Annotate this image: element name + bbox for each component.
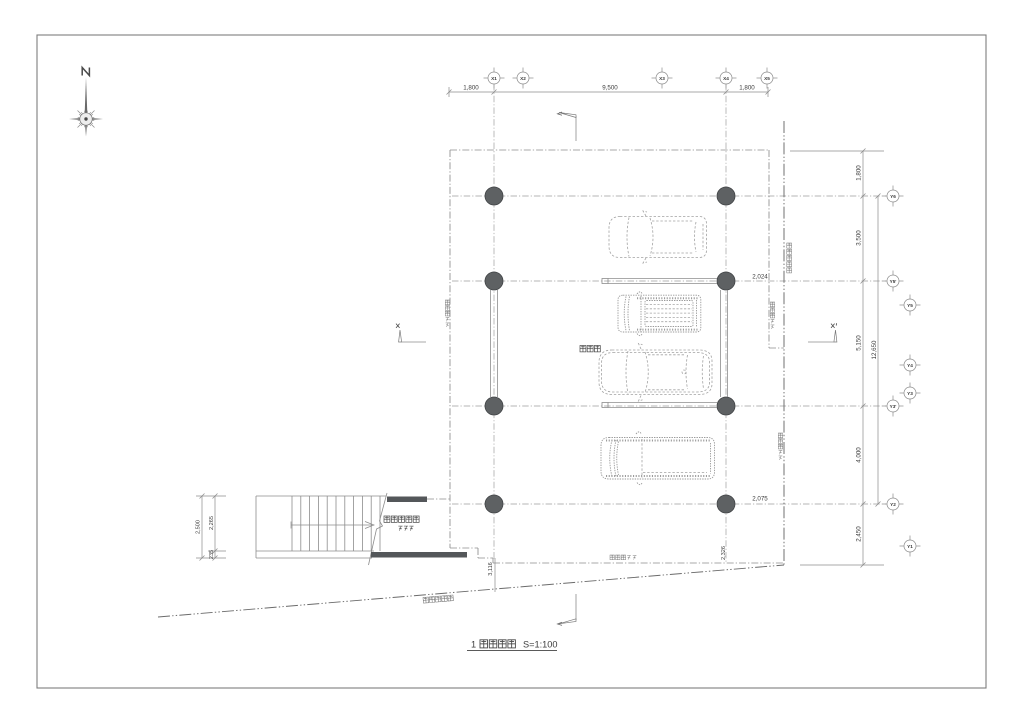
svg-text:4,000: 4,000 — [856, 447, 863, 463]
svg-text:Y6: Y6 — [890, 194, 896, 199]
svg-text:Y1: Y1 — [907, 544, 913, 549]
svg-text:2,450: 2,450 — [856, 526, 863, 542]
svg-text:3,116: 3,116 — [488, 562, 494, 576]
svg-text:S=1:100: S=1:100 — [523, 640, 558, 650]
svg-text:Y5': Y5' — [890, 279, 897, 284]
svg-text:2,265: 2,265 — [209, 516, 215, 530]
svg-text:2,500: 2,500 — [196, 520, 202, 534]
svg-text:1,800: 1,800 — [463, 85, 479, 92]
svg-text:1,800: 1,800 — [739, 85, 755, 92]
svg-text:Y5: Y5 — [907, 303, 913, 308]
svg-text:1,800: 1,800 — [856, 165, 863, 181]
svg-text:Y3: Y3 — [907, 391, 913, 396]
svg-text:X2: X2 — [520, 76, 526, 81]
svg-text:12,650: 12,650 — [871, 340, 878, 359]
svg-text:2,326: 2,326 — [721, 546, 727, 560]
svg-text:X1: X1 — [491, 76, 497, 81]
svg-text:Y2: Y2 — [890, 502, 896, 507]
svg-text:3,500: 3,500 — [856, 230, 863, 246]
svg-text:5,150: 5,150 — [856, 335, 863, 351]
svg-text:Y3': Y3' — [890, 404, 897, 409]
svg-text:2,024: 2,024 — [752, 274, 768, 281]
svg-text:X3: X3 — [659, 76, 665, 81]
svg-text:9,500: 9,500 — [602, 85, 618, 92]
svg-text:X5: X5 — [764, 76, 770, 81]
svg-text:1: 1 — [471, 640, 476, 650]
svg-text:Y4: Y4 — [907, 363, 913, 368]
svg-text:2,075: 2,075 — [752, 496, 768, 503]
svg-text:235: 235 — [209, 550, 215, 559]
svg-text:X4: X4 — [723, 76, 729, 81]
